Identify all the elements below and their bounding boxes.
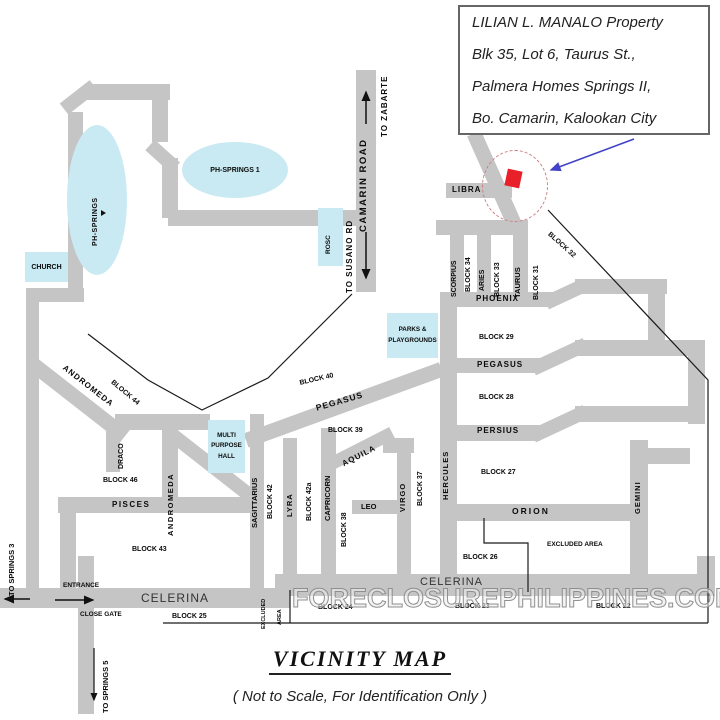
excluded-vertical-label: EXCLUDED (262, 599, 268, 629)
block-27-label: BLOCK 27 (481, 469, 516, 476)
callout-line-4: Bo. Camarin, Kalookan City (472, 109, 708, 128)
callout-line-3: Palmera Homes Springs II, (472, 77, 708, 96)
block-34-label: BLOCK 34 (465, 257, 472, 292)
andromeda-vertical-label: ANDROMEDA (167, 473, 175, 536)
pegasus-right-label: PEGASUS (477, 361, 523, 369)
camarin-road-label: CAMARIN ROAD (359, 139, 369, 232)
block-26-label: BLOCK 26 (463, 554, 498, 561)
vicinity-map: CHURCH PH-SPRINGS PH-SPRINGS 1 ROSC PARK… (0, 0, 720, 720)
sagittarius-label: SAGITTARIUS (251, 478, 259, 528)
boundary-right (548, 210, 708, 623)
block-42-label: BLOCK 42 (267, 484, 274, 519)
block-38-label: BLOCK 38 (341, 512, 348, 547)
block-28-label: BLOCK 28 (479, 394, 514, 401)
block-31-label: BLOCK 31 (533, 265, 540, 300)
to-springs3-label: TO SPRINGS 3 (8, 544, 16, 596)
virgo-label: VIRGO (399, 483, 407, 512)
orion-label: ORION (512, 507, 550, 516)
property-callout-box: LILIAN L. MANALO Property Blk 35, Lot 6,… (458, 5, 710, 135)
block-37-label: BLOCK 37 (417, 471, 424, 506)
libra-label: LIBRA (452, 186, 481, 194)
scorpius-label: SCORPIUS (451, 260, 458, 297)
celerina-left-label: CELERINA (141, 592, 209, 604)
watermark: FORECLOSUREPHILIPPINES.COM (292, 583, 720, 614)
entrance-label: ENTRANCE (63, 583, 99, 590)
persius-label: PERSIUS (477, 427, 519, 435)
block-33-label: BLOCK 33 (494, 262, 501, 297)
block-46-label: BLOCK 46 (103, 477, 138, 484)
capricorn-label: CAPRICORN (324, 476, 332, 521)
callout-line-1: LILIAN L. MANALO Property (472, 13, 708, 32)
hercules-label: HERCULES (442, 451, 450, 500)
block-39-label: BLOCK 39 (328, 427, 363, 434)
area-vertical-label: AREA (278, 609, 284, 625)
to-zabarte-label: TO ZABARTE (381, 76, 389, 137)
gemini-label: GEMINI (634, 481, 642, 514)
aries-label: ARIES (479, 270, 486, 291)
block-29-label: BLOCK 29 (479, 334, 514, 341)
map-title-text: VICINITY MAP (269, 646, 451, 675)
map-title: VICINITY MAP (0, 646, 720, 672)
block-43-label: BLOCK 43 (132, 546, 167, 553)
block-25-label: BLOCK 25 (172, 613, 207, 620)
map-subtitle: ( Not to Scale, For Identification Only … (0, 688, 720, 705)
block-42a-label: BLOCK 42a (306, 482, 313, 521)
leo-label: LEO (361, 503, 376, 511)
draco-label: DRACO (118, 443, 125, 469)
close-gate-label: CLOSE GATE (80, 612, 122, 619)
pisces-label: PISCES (112, 501, 150, 509)
callout-pointer-arrow-icon (551, 139, 634, 170)
callout-line-2: Blk 35, Lot 6, Taurus St., (472, 45, 708, 64)
to-susano-label: TO SUSANO RD (346, 220, 354, 293)
lyra-label: LYRA (286, 493, 294, 517)
excluded-area-label: EXCLUDED AREA (547, 542, 603, 549)
